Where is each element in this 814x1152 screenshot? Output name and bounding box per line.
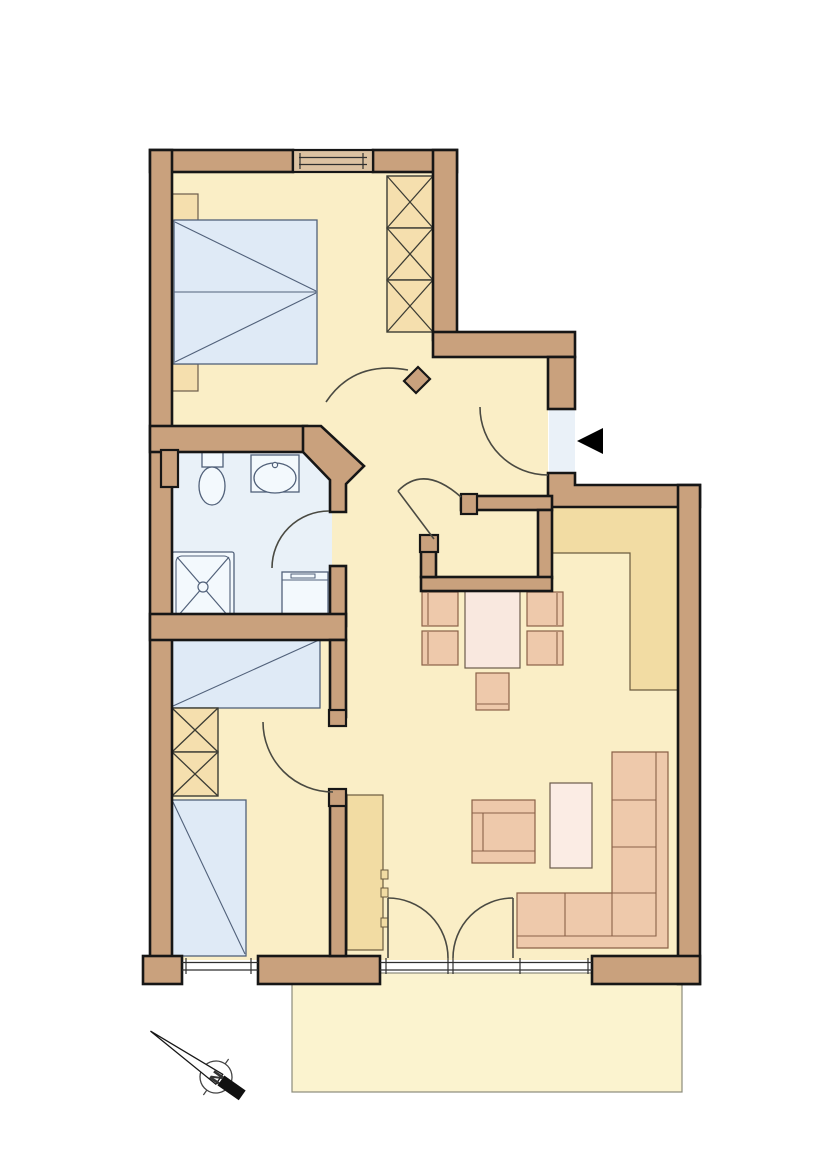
- sink-faucet: [272, 462, 277, 467]
- wall-bottom-left: [143, 956, 182, 984]
- sideboard: [347, 795, 383, 950]
- entrance-marker-triangle: [577, 428, 603, 454]
- wall-right: [678, 485, 700, 984]
- wall-bath-bedroom2-divider: [150, 614, 346, 640]
- chair-right-top: [527, 592, 563, 626]
- wall-bathroom-pillar: [161, 450, 178, 487]
- wall-closet-hinge-top: [461, 494, 477, 514]
- sideboard-knob-1: [381, 870, 388, 879]
- chair-left-top: [422, 592, 458, 626]
- wall-bedroom1-right: [433, 150, 457, 340]
- armchair: [472, 800, 535, 863]
- dining-table: [465, 590, 520, 668]
- toilet-tank: [202, 452, 223, 467]
- compass-tick-west: [203, 1090, 206, 1095]
- wall-entry-right-upper: [548, 357, 575, 409]
- terrace-floor: [292, 973, 682, 1092]
- wall-left: [150, 150, 172, 983]
- wall-bedroom2-door-stub-top: [329, 710, 346, 726]
- window-top: [293, 150, 373, 172]
- coffee-table: [550, 783, 592, 868]
- sideboard-knob-3: [381, 918, 388, 927]
- chair-left-bottom: [422, 631, 458, 665]
- sideboard-knob-2: [381, 888, 388, 897]
- compass-tick-east: [225, 1059, 228, 1064]
- floor-plan-page: N: [0, 0, 814, 1152]
- wall-bedroom2-right-lower: [330, 795, 346, 956]
- nightstand-top: [172, 194, 198, 221]
- floor-plan-canvas: N: [0, 0, 814, 1152]
- wall-closet-right: [538, 510, 552, 578]
- entry-door-opening: [549, 407, 575, 474]
- shower-drain: [198, 582, 208, 592]
- wall-bottom-right: [592, 956, 700, 984]
- wall-bedroom2-right-upper: [330, 640, 346, 717]
- wall-bedroom1-bottom: [150, 426, 307, 452]
- wall-closet-bottom: [421, 577, 552, 591]
- chair-right-bottom: [527, 631, 563, 665]
- nightstand-bottom: [172, 364, 198, 391]
- toilet-bowl: [199, 467, 225, 505]
- wall-closet-hinge-left: [420, 535, 438, 552]
- wall-bottom-mid: [258, 956, 380, 984]
- wall-entry-step-top: [433, 332, 575, 357]
